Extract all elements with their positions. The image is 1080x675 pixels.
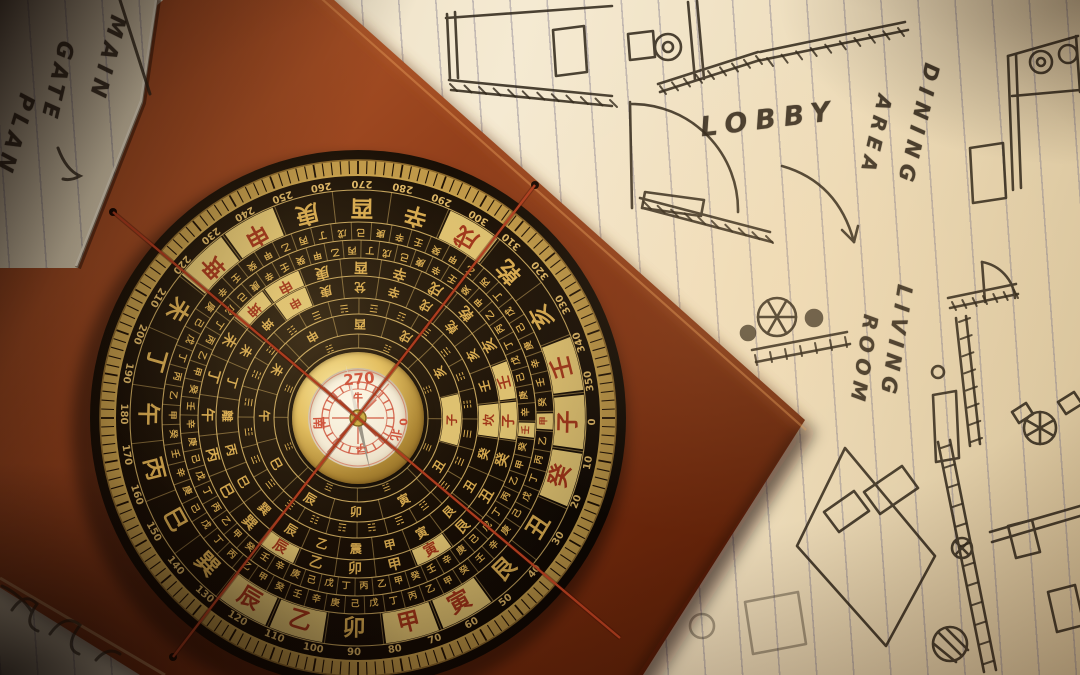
dial-zi-char: 子 — [355, 441, 366, 457]
dial-noon-char: 午 — [353, 390, 363, 405]
dial-degree-0: 0 — [397, 418, 410, 426]
heaven-pool-dial: 270 0 南 北 午 子 — [292, 352, 424, 484]
dial-degree-270: 270 — [343, 369, 376, 390]
dial-south-char: 南 — [310, 416, 329, 430]
luopan-photo-scene: LOBBY DINING AREA LIVING ROOM — [0, 0, 1080, 675]
